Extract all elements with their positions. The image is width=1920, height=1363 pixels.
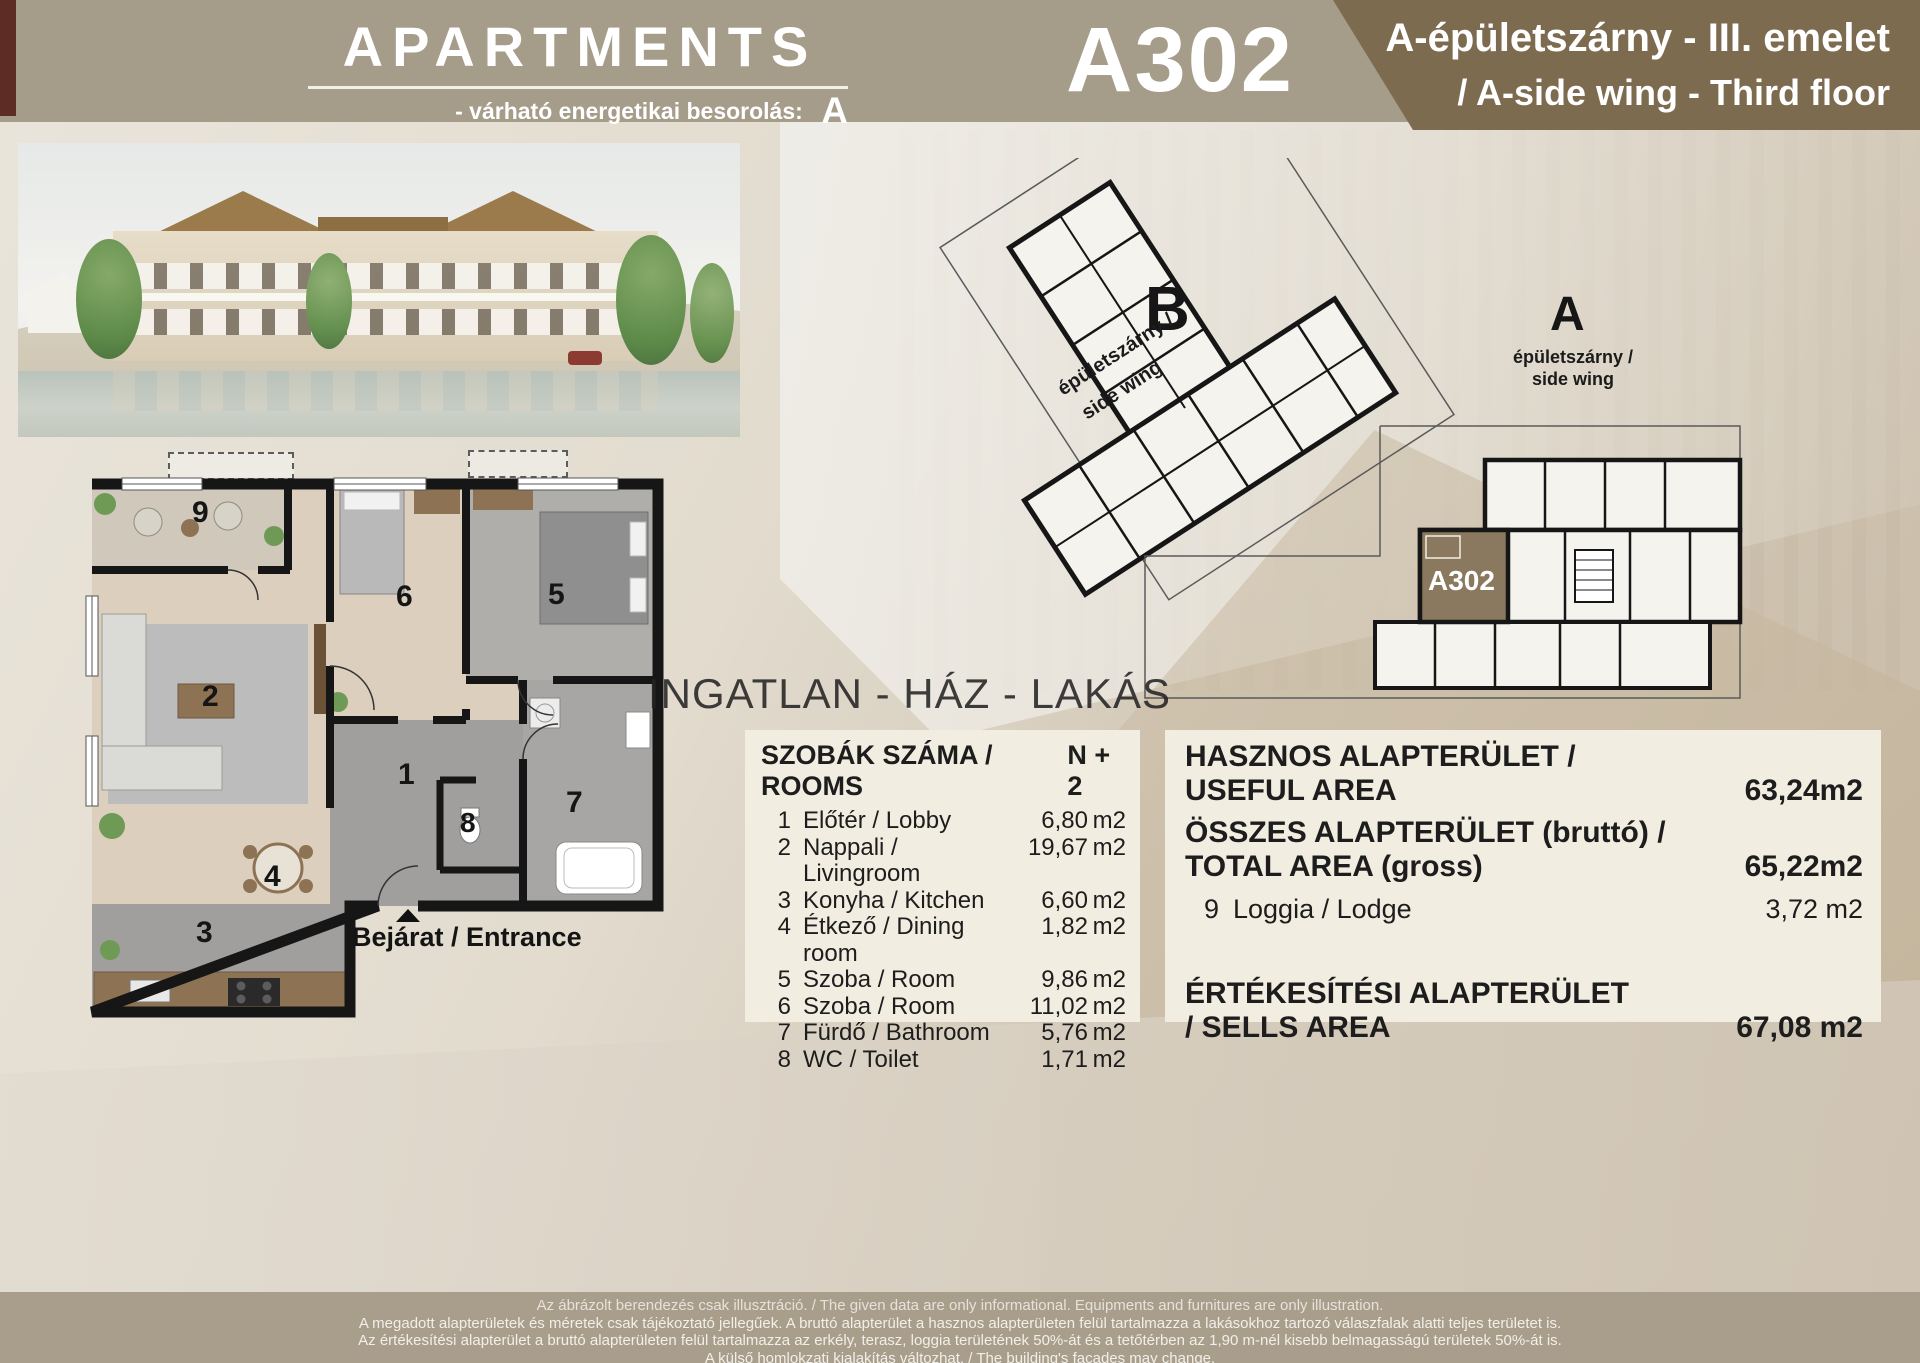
apartment-code: A302 (1066, 8, 1316, 113)
site-a-lower-row (1375, 622, 1710, 688)
table-row: 7 Fürdő / Bathroom 5,76 m2 (761, 1020, 1126, 1047)
plan-loggia-chair (214, 502, 242, 530)
plan-wardrobe (414, 488, 460, 514)
room-unit: m2 (1088, 1047, 1126, 1074)
sells-area-label1: ÉRTÉKESÍTÉSI ALAPTERÜLET (1185, 977, 1863, 1011)
footer-line: A megadott alapterületek és méretek csak… (0, 1315, 1920, 1333)
rooms-table-panel: SZOBÁK SZÁMA / ROOMS N + 2 1 Előtér / Lo… (745, 730, 1140, 1022)
wing-title-en: / A-side wing - Third floor (1340, 72, 1890, 114)
room-num: 3 (761, 888, 791, 915)
gross-area-label2: TOTAL AREA (gross) (1185, 850, 1483, 884)
energy-rating-line: - várható energetikai besorolás: A (400, 90, 848, 132)
plan-dining-chair (299, 879, 313, 893)
energy-rating-value: A (821, 90, 848, 131)
background-corner-accent (0, 0, 16, 116)
table-row: 3 Konyha / Kitchen 6,60 m2 (761, 888, 1126, 915)
footer-disclaimer: Az ábrázolt berendezés csak illusztráció… (0, 1292, 1920, 1363)
room-label-dining: 4 (264, 860, 281, 893)
site-stairs (1575, 550, 1613, 602)
room-num: 8 (761, 1047, 791, 1074)
render-car (568, 351, 602, 365)
plan-sofa (102, 746, 222, 790)
footer-line: A külső homlokzati kialakítás változhat.… (0, 1350, 1920, 1363)
room-name: Előtér / Lobby (803, 808, 1016, 835)
loggia-value: 3,72 m2 (1765, 894, 1863, 925)
room-num: 1 (761, 808, 791, 835)
room-name: Étkező / Dining room (803, 914, 1016, 967)
plan-sofa (102, 614, 146, 764)
room-unit: m2 (1088, 967, 1126, 994)
room-name: Konyha / Kitchen (803, 888, 1016, 915)
room-area: 9,86 (1016, 967, 1088, 994)
site-unit-a302-label: A302 (1428, 565, 1495, 596)
room-unit: m2 (1088, 808, 1126, 835)
entrance-arrow-icon (396, 909, 420, 922)
plan-dining-chair (243, 879, 257, 893)
brand-title: APARTMENTS (306, 14, 854, 74)
room-area: 5,76 (1016, 1020, 1088, 1047)
room-label-lobby: 1 (398, 758, 415, 791)
room-label-bath: 7 (566, 786, 583, 819)
site-wing-a-letter: A (1550, 288, 1585, 341)
room-name: Szoba / Room (803, 967, 1016, 994)
plan-dining-chair (243, 845, 257, 859)
gross-area-value: 65,22m2 (1745, 850, 1863, 884)
room-num: 6 (761, 994, 791, 1021)
room-label-room6: 6 (396, 580, 413, 613)
building-render-photo (18, 143, 740, 437)
room-unit: m2 (1088, 888, 1126, 915)
room-name: Fürdő / Bathroom (803, 1020, 1016, 1047)
plan-plant (264, 526, 284, 546)
room-num: 4 (761, 914, 791, 967)
plan-pillow (630, 578, 646, 612)
plan-loggia-chair (134, 508, 162, 536)
room-unit: m2 (1088, 994, 1126, 1021)
room-label-loggia: 9 (192, 496, 209, 529)
render-balcony-strip (118, 293, 653, 301)
footer-line: Az értékesítési alapterület a bruttó ala… (0, 1332, 1920, 1350)
plan-plant (99, 813, 125, 839)
table-row: 6 Szoba / Room 11,02 m2 (761, 994, 1126, 1021)
brand-underline (308, 86, 848, 89)
room-num: 5 (761, 967, 791, 994)
room-unit: m2 (1088, 1020, 1126, 1047)
loggia-num: 9 (1185, 894, 1219, 925)
room-label-wc: 8 (460, 807, 476, 838)
plan-dining-chair (299, 845, 313, 859)
room-name: WC / Toilet (803, 1047, 1016, 1074)
loggia-row: 9 Loggia / Lodge 3,72 m2 (1185, 894, 1863, 925)
room-unit: m2 (1088, 835, 1126, 888)
energy-rating-label: - várható energetikai besorolás: (455, 98, 803, 124)
site-wing-a-label2: side wing (1532, 369, 1614, 389)
useful-area-label2: USEFUL AREA (1185, 774, 1397, 808)
table-row: 8 WC / Toilet 1,71 m2 (761, 1047, 1126, 1074)
render-window-row (118, 263, 653, 289)
plan-floor-hall (330, 720, 523, 906)
plan-tv-unit (314, 624, 326, 714)
site-wing-a-label1: épületszárny / (1513, 347, 1633, 367)
rooms-table-title: SZOBÁK SZÁMA / ROOMS (761, 740, 1067, 802)
room-unit: m2 (1088, 914, 1126, 967)
render-window-row (118, 309, 653, 335)
footer-line: Az ábrázolt berendezés csak illusztráció… (0, 1297, 1920, 1315)
room-label-living: 2 (202, 680, 219, 713)
room-num: 2 (761, 835, 791, 888)
wing-title-hu: A-épületszárny - III. emelet (1340, 16, 1890, 61)
render-tree (306, 253, 352, 349)
rooms-table-count: N + 2 (1067, 740, 1126, 802)
areas-panel: HASZNOS ALAPTERÜLET / USEFUL AREA 63,24m… (1165, 730, 1881, 1022)
watermark-text: INGATLAN - HÁZ - LAKÁS (648, 670, 1348, 718)
gross-area-label1: ÖSSZES ALAPTERÜLET (bruttó) / (1185, 816, 1863, 850)
room-area: 11,02 (1016, 994, 1088, 1021)
render-tree (616, 235, 686, 365)
room-area: 6,80 (1016, 808, 1088, 835)
flyer-page: APARTMENTS - várható energetikai besorol… (0, 0, 1920, 1363)
render-water-reflection (113, 371, 658, 411)
room-area: 19,67 (1016, 835, 1088, 888)
site-a-upper-row (1485, 460, 1740, 530)
plan-pillow (630, 522, 646, 556)
render-tree (76, 239, 142, 359)
sells-area-value: 67,08 m2 (1736, 1011, 1863, 1045)
room-name: Nappali / Livingroom (803, 835, 1016, 888)
room-label-room5: 5 (548, 578, 565, 611)
plan-plant (94, 493, 116, 515)
entrance-label: Bejárat / Entrance (352, 922, 612, 953)
plan-bathtub (556, 842, 642, 894)
table-row: 1 Előtér / Lobby 6,80 m2 (761, 808, 1126, 835)
room-area: 1,71 (1016, 1047, 1088, 1074)
site-plan: A302 B épületszárny / side wing A épület… (845, 158, 1745, 718)
room-area: 6,60 (1016, 888, 1088, 915)
plan-sink (626, 712, 650, 748)
sells-area-label2: / SELLS AREA (1185, 1011, 1391, 1045)
useful-area-label1: HASZNOS ALAPTERÜLET / (1185, 740, 1863, 774)
plan-stove (228, 978, 280, 1006)
loggia-name: Loggia / Lodge (1233, 894, 1765, 925)
plan-pillow (344, 492, 400, 510)
useful-area-value: 63,24m2 (1745, 774, 1863, 808)
room-num: 7 (761, 1020, 791, 1047)
table-row: 2 Nappali / Livingroom 19,67 m2 (761, 835, 1126, 888)
render-tree (690, 263, 734, 363)
table-row: 5 Szoba / Room 9,86 m2 (761, 967, 1126, 994)
table-row: 4 Étkező / Dining room 1,82 m2 (761, 914, 1126, 967)
room-label-kitchen: 3 (196, 916, 213, 949)
room-name: Szoba / Room (803, 994, 1016, 1021)
room-area: 1,82 (1016, 914, 1088, 967)
plan-plant (100, 940, 120, 960)
